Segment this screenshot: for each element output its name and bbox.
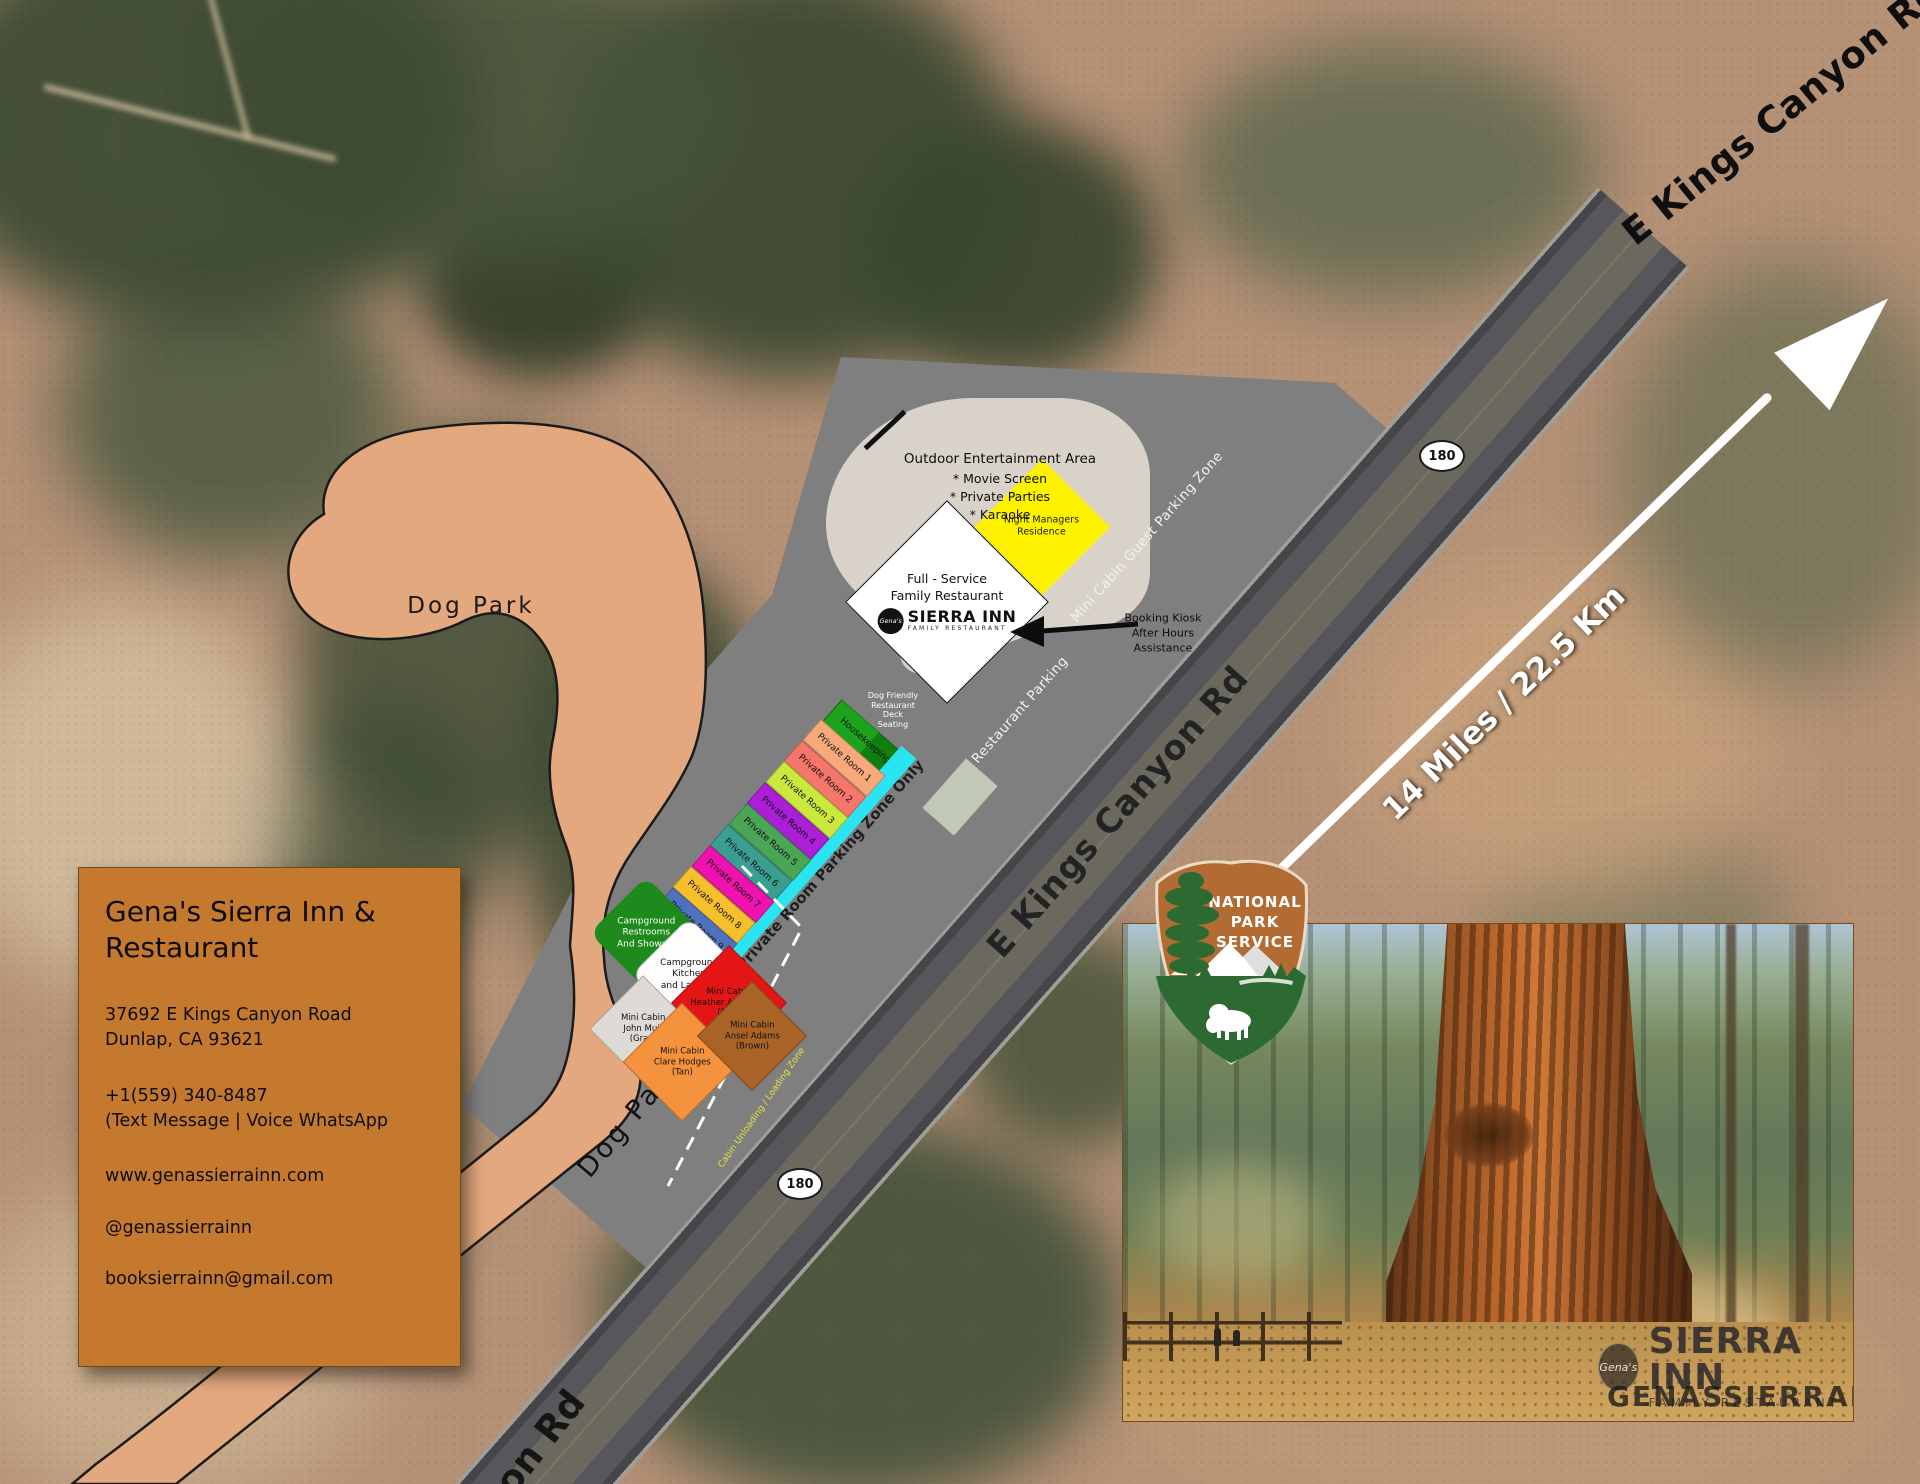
business-title: Gena's Sierra Inn & Restaurant (105, 894, 434, 967)
person (1214, 1328, 1221, 1346)
route-180-badge: 180 (777, 1168, 823, 1200)
svg-text:PARK: PARK (1231, 913, 1280, 931)
route-180-badge: 180 (1419, 440, 1465, 472)
email-address: booksierrainn@gmail.com (105, 1267, 434, 1292)
property-map: Mini Cabin Guest Parking Zone Restaurant… (0, 0, 1920, 1484)
tree-burl (1444, 1103, 1534, 1167)
phone-note: (Text Message | Voice WhatsApp (105, 1109, 434, 1134)
phone-number: +1(559) 340-8487 (105, 1084, 434, 1109)
address-line: 37692 E Kings Canyon Road (105, 1003, 434, 1028)
address-line: Dunlap, CA 93621 (105, 1028, 434, 1053)
svg-text:NATIONAL: NATIONAL (1208, 893, 1301, 911)
contact-info-box: Gena's Sierra Inn & Restaurant 37692 E K… (78, 867, 461, 1367)
person (1233, 1330, 1240, 1346)
website-url: www.genassierrainn.com (105, 1164, 434, 1189)
booking-kiosk-label: Booking Kiosk After Hours Assistance (1125, 612, 1202, 657)
social-handle: @genassierrainn (105, 1216, 434, 1241)
national-park-service-logo: NATIONAL PARK SERVICE (1143, 853, 1319, 1069)
photo-watermark-url: GENASSIERRAINN.COM (1607, 1380, 1854, 1413)
